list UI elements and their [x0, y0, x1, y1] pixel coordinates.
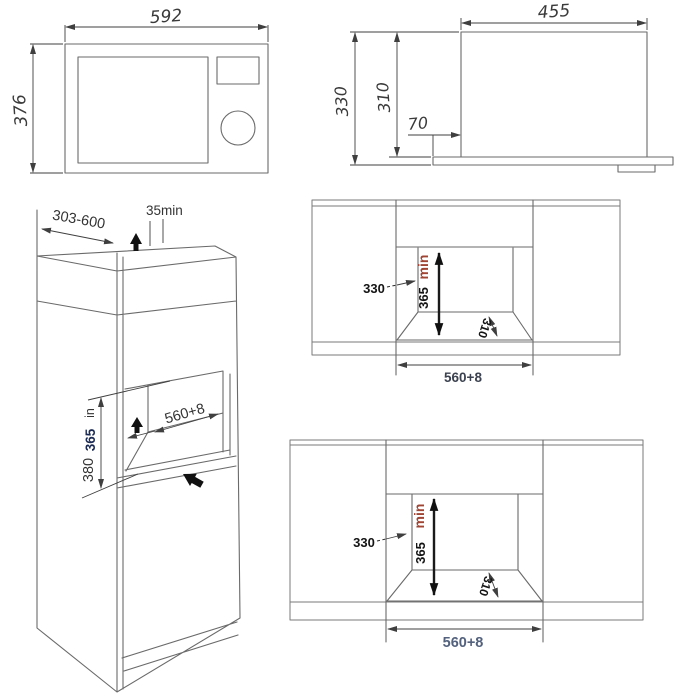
vent-arrow-top-icon	[130, 233, 142, 251]
cabinet-depth-range-label: 303-600	[51, 208, 106, 233]
side-view: 455 330 310 70	[331, 1, 673, 172]
side-depth-label-a: 330	[363, 281, 385, 296]
installation-diagram: 592 376 455 330 310 70 303-600 35min 560…	[0, 0, 700, 700]
min-height-unit-b: min	[411, 504, 427, 529]
niche-width-tail-line	[128, 431, 155, 438]
diagram-svg: 592 376 455 330 310 70 303-600 35min 560…	[0, 0, 700, 700]
side-total-height-label: 330	[331, 85, 352, 117]
oven-display	[217, 57, 259, 84]
width-extension-lines	[65, 25, 268, 42]
insert-direction-arrow-icon	[183, 474, 204, 488]
width-label-a: 560+8	[444, 370, 482, 385]
niche-view-bottom: 330 365 min 310 560+8	[290, 440, 643, 651]
oven-door-glass	[78, 57, 208, 163]
min-height-unit-a: min	[415, 255, 431, 280]
rear-depth-label-b: 310	[476, 575, 496, 599]
cabinet-min-height-label: 365	[83, 428, 98, 451]
front-width-label: 592	[149, 6, 183, 28]
oven-front-outline	[65, 44, 268, 173]
rear-depth-label-a: 310	[475, 317, 495, 341]
oven-body-side	[461, 32, 647, 157]
cabinet-band-outline-b	[290, 440, 643, 620]
side-offset-label: 70	[407, 113, 429, 134]
cabinet-view: 303-600 35min 560+8 in 365 380	[37, 203, 240, 692]
min-height-label-a: 365	[416, 287, 431, 309]
bottom-tab	[618, 165, 655, 172]
vent-arrow-niche-icon	[131, 417, 143, 433]
front-view: 592 376	[10, 6, 268, 173]
cabinet-outer-height-label: 380	[81, 458, 97, 482]
height-extension-lines	[30, 44, 63, 173]
oven-knob	[221, 111, 255, 145]
side-depth-label-b: 330	[353, 535, 375, 550]
height-extension-lines-side	[350, 32, 459, 165]
side-depth-leader-b	[377, 539, 386, 541]
top-clearance-ticks	[150, 219, 163, 246]
side-depth-arrow-a	[397, 281, 415, 285]
side-body-height-label: 310	[373, 81, 394, 113]
side-depth-label: 455	[537, 1, 571, 23]
niche-view-top: 330 365 min 310 560+8	[312, 200, 620, 385]
min-height-label-b: 365	[413, 542, 428, 564]
cabinet-top-clearance-label: 35min	[146, 203, 183, 218]
niche-opening-b	[386, 440, 543, 642]
front-height-label: 376	[10, 93, 32, 127]
cabinet-min-height-unit: in	[83, 408, 97, 418]
cabinet-band-outline-a	[312, 200, 620, 355]
side-depth-arrow-b	[386, 534, 406, 539]
cabinet-outline	[37, 210, 240, 692]
front-frame-plate	[433, 157, 673, 165]
width-label-b: 560+8	[443, 635, 484, 651]
